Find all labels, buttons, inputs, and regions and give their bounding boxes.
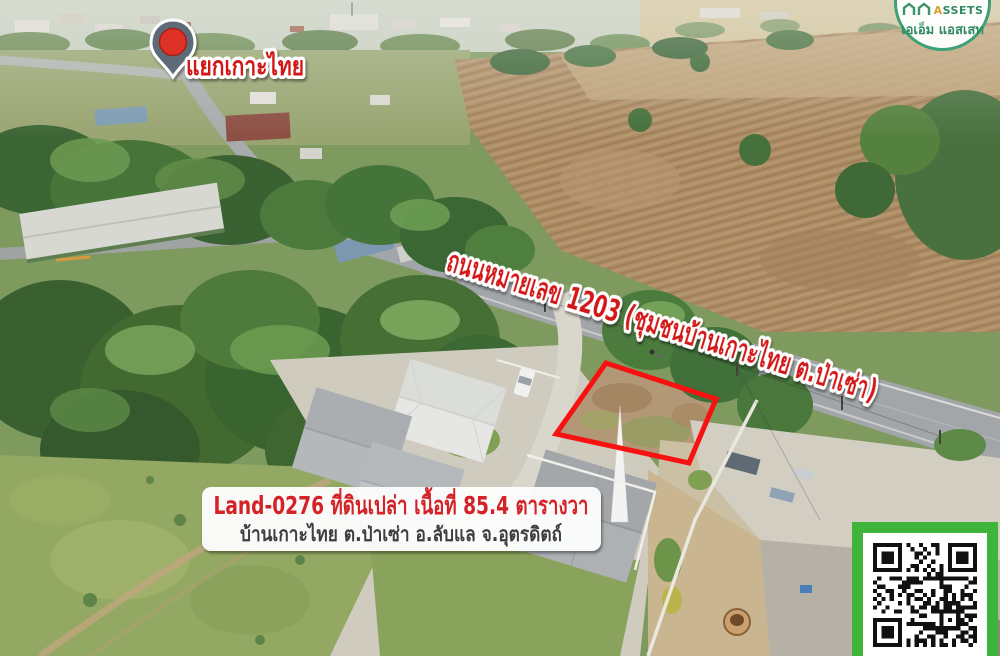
plot-outline [556,363,716,463]
qr-frame [852,522,998,656]
listing-photo-post: แยกเกาะไทย ถนนหมายเลข 1203 (ชุมชนบ้านเกา… [0,0,1000,656]
brand-name-thai: เอเอ็ม แอสเสท [901,19,984,40]
road-name-label: ถนนหมายเลข 1203 (ชุมชนบ้านเกาะไทย ต.ป่าเ… [442,243,881,409]
brand-name: ASSETS [934,5,984,16]
info-line-primary: Land-0276 ที่ดินเปล่า เนื้อที่ 85.4 ตารา… [214,486,589,520]
brand-logo-mark-icon [902,2,932,16]
pin-label: แยกเกาะไทย [186,50,304,82]
qr-code [863,533,987,656]
info-line-secondary: บ้านเกาะไทย ต.ป่าเซ่า อ.ลับแล จ.อุตรดิตถ… [240,522,562,547]
info-box: Land-0276 ที่ดินเปล่า เนื้อที่ 85.4 ตารา… [202,486,601,551]
photo-annotations: แยกเกาะไทย ถนนหมายเลข 1203 (ชุมชนบ้านเกา… [0,0,1000,656]
